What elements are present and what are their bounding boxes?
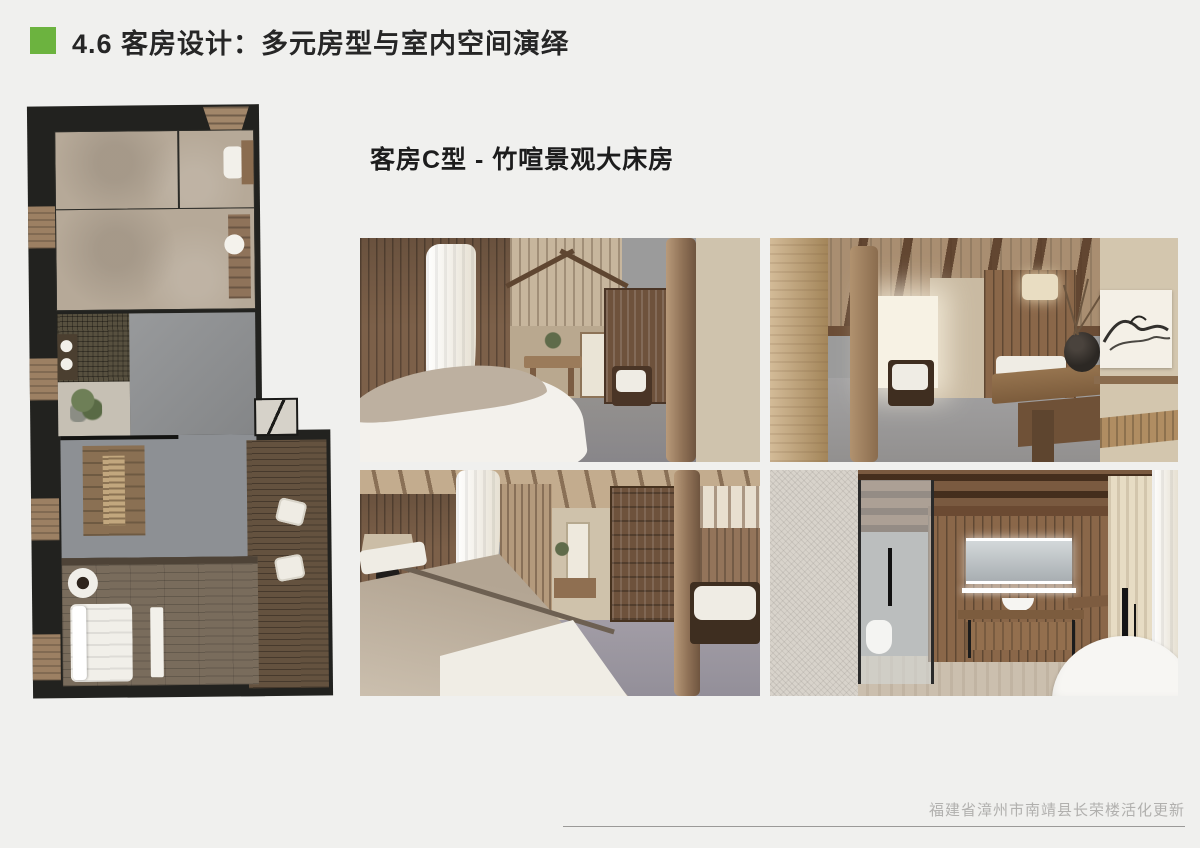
wall-lamp [1022, 274, 1058, 300]
table-leg [1032, 410, 1054, 462]
render-bedroom-view [360, 238, 760, 462]
floorplan-closet [241, 140, 253, 184]
floorplan-bench [150, 607, 164, 677]
screen-doors [612, 488, 674, 620]
floorplan-room-main [56, 208, 255, 310]
glass-door [858, 480, 934, 684]
vanity-bench [554, 578, 596, 598]
wall-top-beam [928, 506, 1110, 516]
timber-column [850, 246, 878, 462]
vanity-counter [958, 610, 1084, 619]
floorplan-wc-fixture [60, 340, 72, 352]
toilet [866, 620, 892, 654]
timber-column-big [770, 238, 828, 462]
textured-wall [696, 238, 760, 462]
window-band [700, 486, 760, 528]
floorplan-door-swing [256, 400, 296, 434]
plant [554, 542, 570, 562]
floorplan-basin [224, 234, 244, 254]
table-leg [568, 368, 574, 396]
plant [544, 332, 562, 356]
page-title: 4.6 客房设计：多元房型与室内空间演绎 [72, 22, 569, 61]
render-tea-lounge [770, 238, 1178, 462]
floor-plan [27, 103, 333, 698]
vase [1064, 332, 1100, 372]
armchair-cushion [616, 370, 646, 392]
doorway [580, 332, 606, 398]
room-type-subtitle: 客房C型 - 竹喧景观大床房 [370, 140, 674, 176]
armchair-cushion [892, 364, 928, 390]
floorplan-plant [70, 386, 102, 422]
vanity-bench [966, 622, 1076, 650]
lit-shelf [962, 588, 1076, 593]
floorplan-steps-left [32, 634, 60, 680]
floorplan-grey-floor [129, 312, 256, 435]
vanity-leg [968, 620, 971, 658]
render-bedroom-daybed [360, 470, 760, 696]
title-accent-square [30, 27, 56, 54]
floorplan-steps-left [30, 358, 58, 400]
render-bathroom [770, 470, 1178, 696]
footer-divider [563, 826, 1185, 827]
mirror [966, 538, 1072, 584]
table [524, 356, 582, 368]
wall-shelf [1094, 376, 1178, 384]
footer-project-name: 福建省漳州市南靖县长荣楼活化更新 [929, 799, 1185, 820]
door-handle [888, 548, 892, 606]
floorplan-desk [228, 214, 251, 298]
ink-painting [1100, 290, 1172, 368]
timber-column [666, 238, 696, 462]
floorplan-steps-left [31, 498, 59, 540]
floorplan-wc-fixture [61, 358, 73, 370]
floorplan-lounge-chair [274, 553, 306, 582]
plaster-wall [770, 470, 858, 696]
cream-curtain [1108, 476, 1152, 648]
floorplan-bed-pillow [72, 606, 87, 680]
floorplan-steps-left [28, 206, 56, 248]
wainscot [700, 528, 760, 586]
sofa-cushions [694, 586, 756, 620]
floorplan-round-rug [68, 568, 98, 598]
floorplan-table-runner [103, 456, 126, 526]
